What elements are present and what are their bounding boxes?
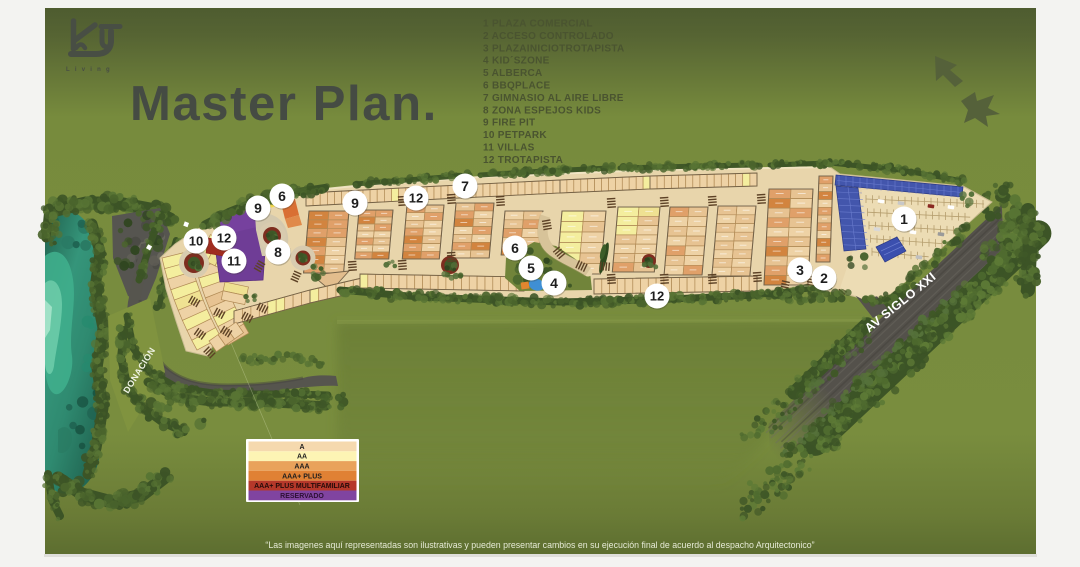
svg-text:1 PLAZA COMERCIAL: 1 PLAZA COMERCIAL xyxy=(483,19,593,30)
svg-text:3: 3 xyxy=(796,262,804,278)
svg-text:2: 2 xyxy=(820,270,828,286)
svg-text:8: 8 xyxy=(274,244,282,260)
svg-text:11: 11 xyxy=(227,254,241,269)
svg-text:4 KID´SZONE: 4 KID´SZONE xyxy=(483,56,550,67)
svg-text:4: 4 xyxy=(550,275,558,291)
svg-text:6 BBQPLACE: 6 BBQPLACE xyxy=(483,81,550,92)
svg-text:6: 6 xyxy=(278,188,286,204)
svg-text:7 GIMNASIO AL AIRE LIBRE: 7 GIMNASIO AL AIRE LIBRE xyxy=(483,93,624,104)
svg-text:12 TROTAPISTA: 12 TROTAPISTA xyxy=(483,155,563,166)
svg-text:3 PLAZAINICIOTROTAPISTA: 3 PLAZAINICIOTROTAPISTA xyxy=(483,43,625,54)
svg-text:9 FIRE PIT: 9 FIRE PIT xyxy=(483,118,535,129)
svg-text:RESERVADO: RESERVADO xyxy=(280,493,324,500)
svg-text:12: 12 xyxy=(217,231,231,246)
svg-text:11 VILLAS: 11 VILLAS xyxy=(483,143,535,154)
svg-text:12: 12 xyxy=(650,289,664,304)
svg-text:“Las imagenes aquí representad: “Las imagenes aquí representadas son ilu… xyxy=(265,540,814,550)
svg-text:12: 12 xyxy=(409,191,423,206)
svg-text:5: 5 xyxy=(527,260,535,276)
svg-text:Master Plan.: Master Plan. xyxy=(130,77,438,131)
svg-text:6: 6 xyxy=(511,240,519,256)
svg-text:9: 9 xyxy=(351,195,359,211)
svg-text:Living: Living xyxy=(66,67,115,73)
svg-text:1: 1 xyxy=(900,211,908,227)
svg-text:AAA: AAA xyxy=(294,464,309,471)
svg-text:10 PETPARK: 10 PETPARK xyxy=(483,130,547,141)
svg-text:8 ZONA ESPEJOS KIDS: 8 ZONA ESPEJOS KIDS xyxy=(483,105,601,116)
svg-text:10: 10 xyxy=(189,234,203,249)
svg-text:AAA+ PLUS: AAA+ PLUS xyxy=(282,473,322,480)
svg-text:A: A xyxy=(299,444,304,451)
svg-text:AA: AA xyxy=(297,454,307,461)
svg-text:AAA+ PLUS MULTIFAMILIAR: AAA+ PLUS MULTIFAMILIAR xyxy=(254,483,350,490)
svg-text:5 ALBERCA: 5 ALBERCA xyxy=(483,68,543,79)
svg-text:7: 7 xyxy=(461,178,469,194)
svg-text:9: 9 xyxy=(254,200,262,216)
svg-text:2 ACCESO CONTROLADO: 2 ACCESO CONTROLADO xyxy=(483,31,614,42)
